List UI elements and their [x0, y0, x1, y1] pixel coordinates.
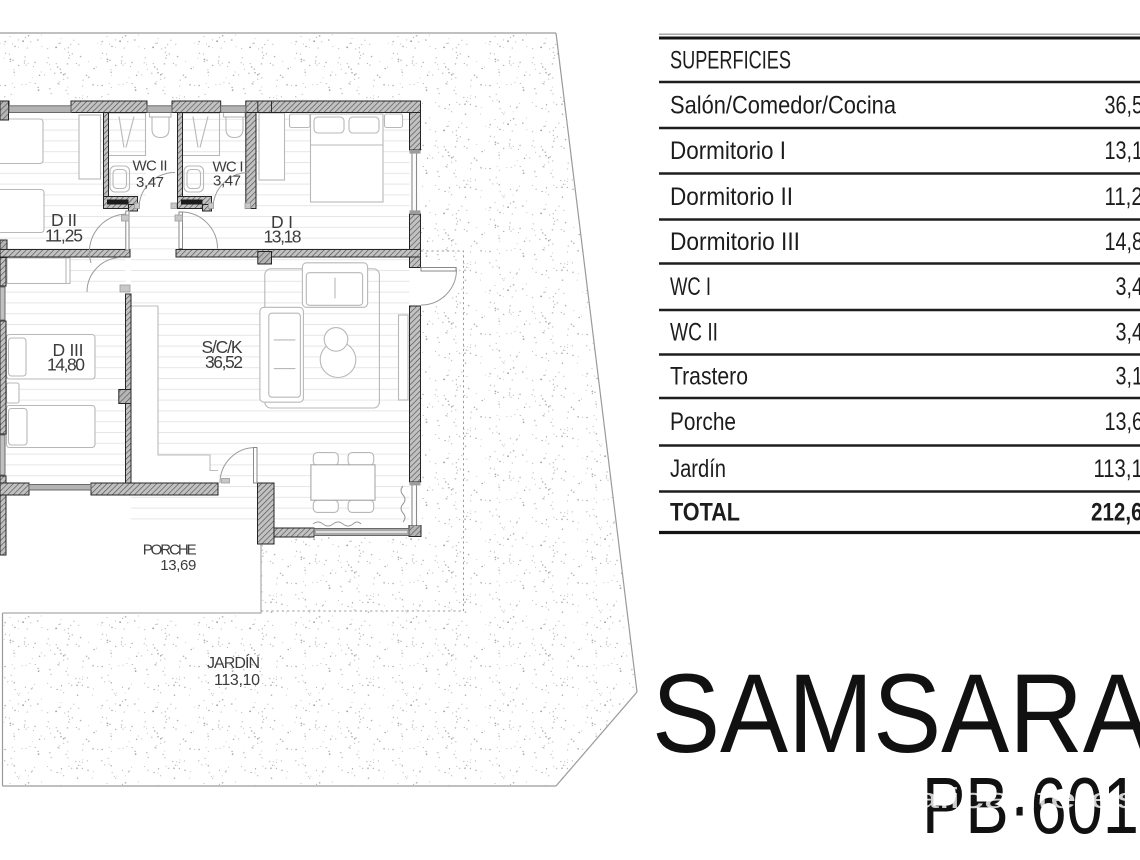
svg-text:3,15: 3,15 [1116, 363, 1140, 391]
svg-text:SUPERFICIES: SUPERFICIES [670, 46, 791, 74]
svg-text:113,10: 113,10 [1094, 455, 1140, 483]
svg-text:WC I: WC I [670, 273, 711, 301]
svg-text:3,47: 3,47 [1116, 319, 1140, 347]
svg-text:Salón/Comedor/Cocina: Salón/Comedor/Cocina [670, 92, 896, 120]
svg-text:Jardín: Jardín [670, 455, 726, 483]
svg-text:13,69: 13,69 [160, 557, 196, 574]
svg-text:3,47: 3,47 [136, 174, 164, 191]
svg-text:Dormitorio III: Dormitorio III [670, 228, 800, 256]
svg-text:3,47: 3,47 [213, 172, 241, 189]
svg-text:TOTAL: TOTAL [670, 499, 740, 527]
svg-text:14,80: 14,80 [47, 355, 85, 375]
svg-text:113,10: 113,10 [214, 672, 260, 689]
svg-text:13,18: 13,18 [1105, 137, 1140, 165]
svg-text:WC II: WC II [670, 319, 718, 347]
svg-text:3,47: 3,47 [1116, 273, 1140, 301]
svg-text:WC II: WC II [133, 157, 168, 174]
svg-text:Porche: Porche [670, 408, 736, 436]
svg-text:SAMSARA: SAMSARA [652, 651, 1140, 776]
svg-text:13,18: 13,18 [264, 227, 302, 247]
svg-text:www.naranjaalicante.es: www.naranjaalicante.es [638, 783, 1140, 815]
svg-text:212,67: 212,67 [1091, 499, 1140, 527]
svg-text:36,52: 36,52 [205, 352, 243, 372]
svg-text:11,25: 11,25 [45, 226, 83, 246]
svg-text:Dormitorio I: Dormitorio I [670, 137, 786, 165]
svg-text:11,25: 11,25 [1105, 183, 1140, 211]
svg-text:36,52: 36,52 [1105, 92, 1140, 120]
svg-text:14,80: 14,80 [1105, 228, 1140, 256]
svg-text:Trastero: Trastero [670, 363, 748, 391]
svg-text:JARDÍN: JARDÍN [207, 653, 260, 672]
svg-text:13,69: 13,69 [1105, 408, 1140, 436]
svg-text:Dormitorio II: Dormitorio II [670, 183, 793, 211]
